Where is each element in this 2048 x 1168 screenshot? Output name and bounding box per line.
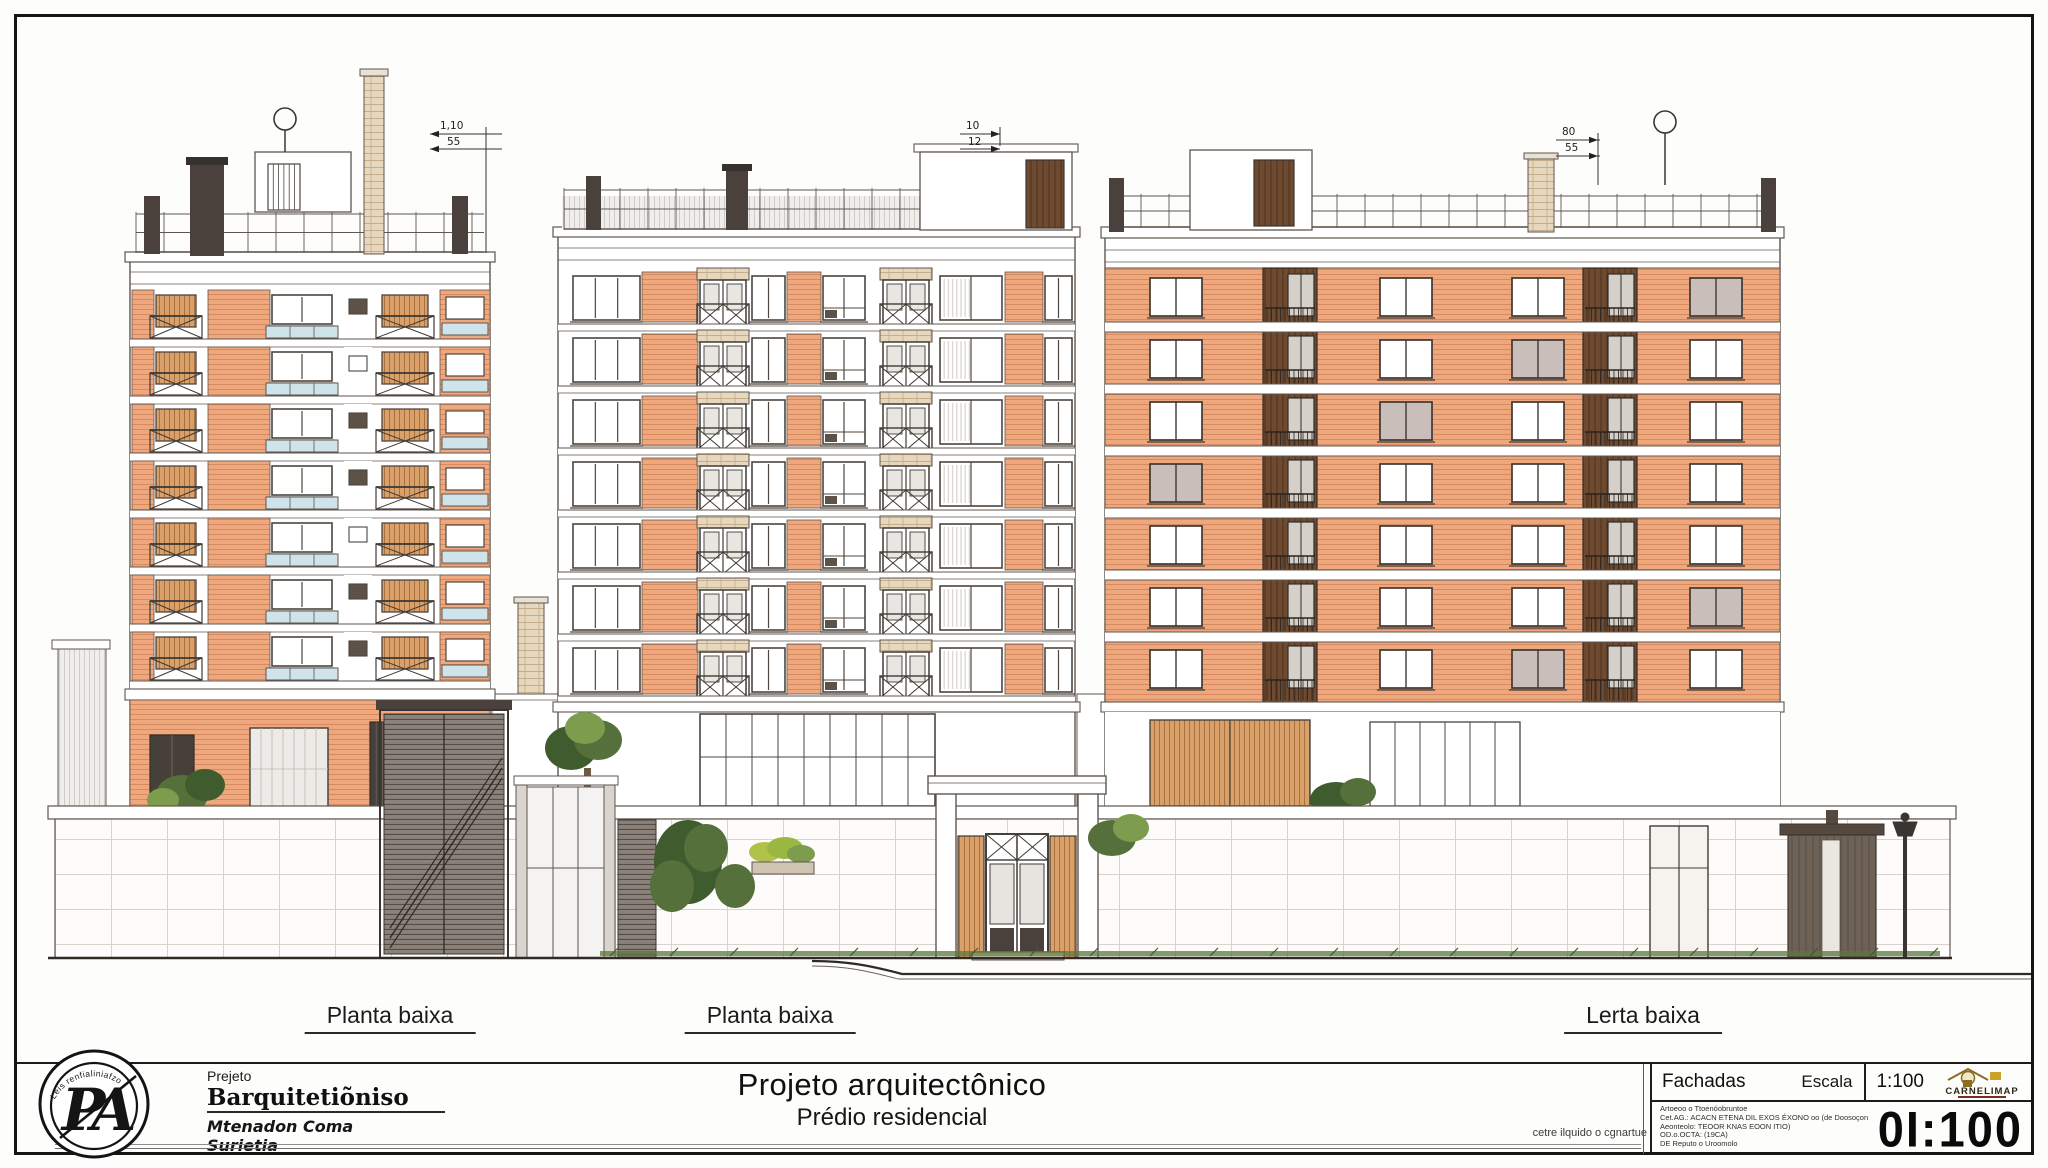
titleblock-rule [55, 1144, 1641, 1149]
company-logo: CARNELIMAP [1936, 1065, 2028, 1100]
section-title: Fachadas [1652, 1064, 1789, 1100]
drawing-sheet: Planta baixa Planta baixa Lerta baixa 1,… [0, 0, 2048, 1168]
titleblock-note-line: DE Reputo o Uroomolo [1660, 1140, 1868, 1149]
titleblock-center: Projeto arquitectônico Prédio residencia… [562, 1067, 1222, 1132]
titleblock-notes: Artoeoo o Ttoenóobruntoe Cet.AG.: ACACN … [1660, 1105, 1868, 1149]
titleblock-right: Fachadas Escala 1:100 CARNELIMAP Artoeoo… [1650, 1064, 2031, 1154]
dimension-label: 12 [968, 136, 981, 148]
firm-name: Barquitetiõniso [207, 1085, 445, 1112]
sheet-number: 0I:100 [1878, 1100, 2023, 1158]
project-type-label: Prejeto [207, 1069, 445, 1084]
scale-label: Escala [1789, 1064, 1864, 1100]
dimension-label: 10 [966, 120, 979, 132]
titleblock-right-body: Artoeoo o Ttoenóobruntoe Cet.AG.: ACACN … [1652, 1102, 2031, 1152]
elevations-drawing [0, 0, 2048, 1168]
dimension-label: 80 [1562, 126, 1575, 138]
titleblock-divider-line [1643, 1064, 1644, 1154]
author-name: Mtenadon Coma [207, 1117, 445, 1136]
titleblock-right-header: Fachadas Escala 1:100 CARNELIMAP [1652, 1064, 2031, 1102]
titleblock: Prejeto Barquitetiõniso Mtenadon Coma Su… [17, 1062, 2031, 1154]
sheet-note: cetre ilquido o cgnartue [1207, 1127, 1647, 1139]
sheet-title: Projeto arquitectônico [562, 1067, 1222, 1103]
dimension-label: 55 [447, 136, 460, 148]
elevation-label-right: Lerta baixa [1564, 1002, 1722, 1034]
sheet-subtitle: Prédio residencial [562, 1104, 1222, 1132]
elevation-label-left: Planta baixa [305, 1002, 476, 1034]
logo-block [1990, 1072, 2001, 1080]
dimension-label: 55 [1565, 142, 1578, 154]
logo-underline [1958, 1096, 2006, 1098]
company-logo-text: CARNELIMAP [1945, 1086, 2018, 1097]
dimension-label: 1,10 [440, 120, 463, 132]
pa-logo: Leis renfialiniafzo PA [36, 1046, 152, 1162]
elevation-label-center: Planta baixa [685, 1002, 856, 1034]
titleblock-left: Prejeto Barquitetiõniso Mtenadon Coma Su… [207, 1069, 445, 1155]
scale-value: 1:100 [1864, 1064, 1934, 1100]
